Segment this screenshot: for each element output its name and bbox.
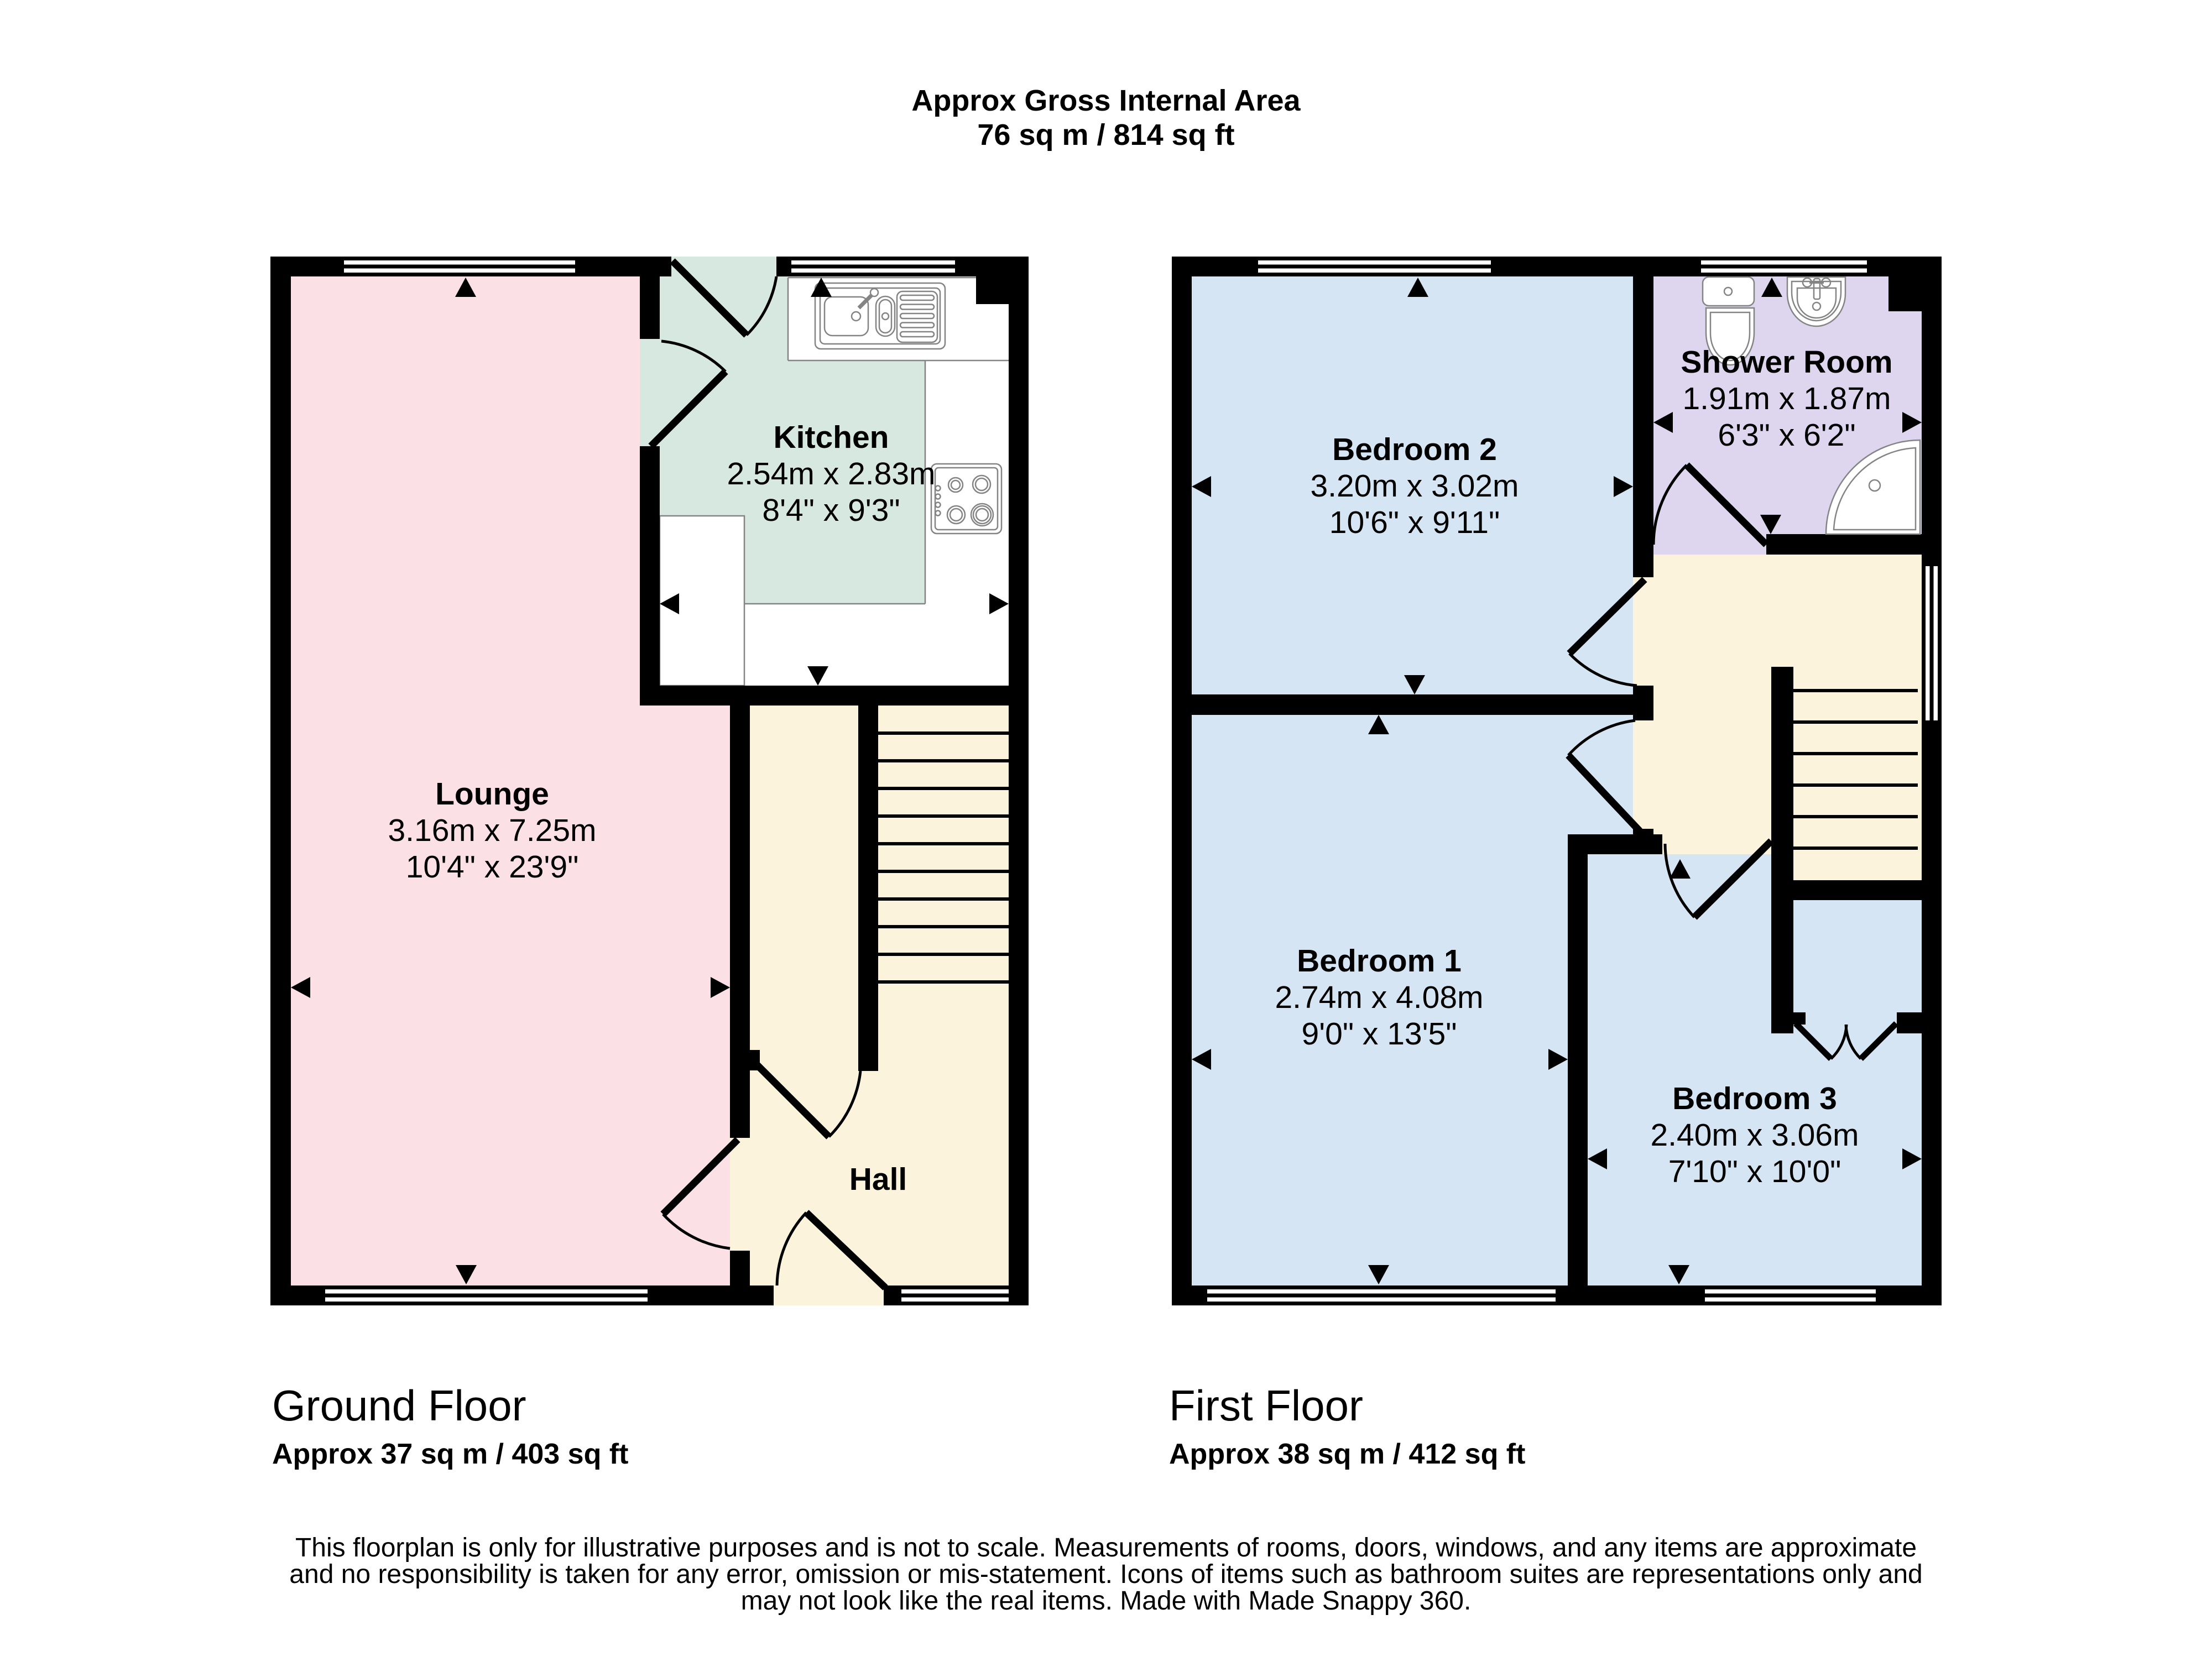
svg-text:Approx 37 sq m / 403 sq ft: Approx 37 sq m / 403 sq ft [272,1438,628,1470]
svg-text:Hall: Hall [849,1162,907,1197]
svg-text:6'3" x 6'2": 6'3" x 6'2" [1718,417,1855,453]
svg-text:2.54m x 2.83m: 2.54m x 2.83m [727,456,935,492]
svg-text:Ground Floor: Ground Floor [272,1381,526,1430]
svg-text:Shower Room: Shower Room [1681,344,1892,380]
svg-text:Approx Gross Internal Area: Approx Gross Internal Area [911,84,1301,117]
svg-text:Bedroom 3: Bedroom 3 [1672,1081,1837,1116]
svg-text:and no responsibility is taken: and no responsibility is taken for any e… [289,1560,1922,1589]
svg-text:Approx 38 sq m / 412 sq ft: Approx 38 sq m / 412 sq ft [1169,1438,1525,1470]
svg-text:First Floor: First Floor [1169,1381,1363,1430]
svg-text:Bedroom 2: Bedroom 2 [1332,432,1497,467]
svg-text:2.40m x 3.06m: 2.40m x 3.06m [1650,1117,1859,1153]
svg-text:Bedroom 1: Bedroom 1 [1297,943,1462,979]
svg-text:76 sq m / 814 sq ft: 76 sq m / 814 sq ft [977,118,1234,151]
svg-text:10'4" x 23'9": 10'4" x 23'9" [406,849,579,885]
svg-text:Lounge: Lounge [435,776,549,812]
svg-text:3.20m x 3.02m: 3.20m x 3.02m [1310,468,1519,504]
svg-text:This floorplan is only for ill: This floorplan is only for illustrative … [295,1533,1917,1563]
svg-text:3.16m x 7.25m: 3.16m x 7.25m [388,813,596,848]
svg-text:2.74m x 4.08m: 2.74m x 4.08m [1275,980,1483,1015]
svg-text:1.91m x 1.87m: 1.91m x 1.87m [1682,381,1891,416]
svg-text:8'4" x 9'3": 8'4" x 9'3" [762,493,900,528]
svg-text:9'0" x 13'5": 9'0" x 13'5" [1302,1016,1457,1052]
svg-text:Kitchen: Kitchen [773,420,889,455]
svg-text:may not look like the real ite: may not look like the real items. Made w… [741,1586,1472,1616]
svg-text:7'10" x 10'0": 7'10" x 10'0" [1668,1154,1841,1189]
svg-text:10'6" x 9'11": 10'6" x 9'11" [1329,505,1500,540]
